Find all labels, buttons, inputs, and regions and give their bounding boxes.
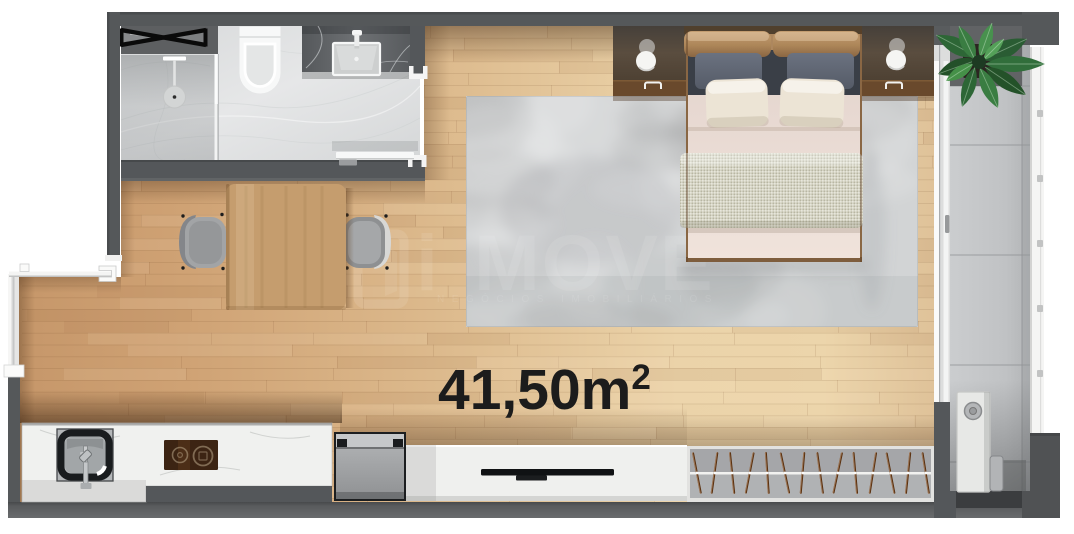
svg-text:i: i xyxy=(416,218,438,307)
svg-text:NEGÓCIOS IMOBILIÁRIOS: NEGÓCIOS IMOBILIÁRIOS xyxy=(437,292,719,305)
svg-text:41,50m2: 41,50m2 xyxy=(438,358,651,422)
